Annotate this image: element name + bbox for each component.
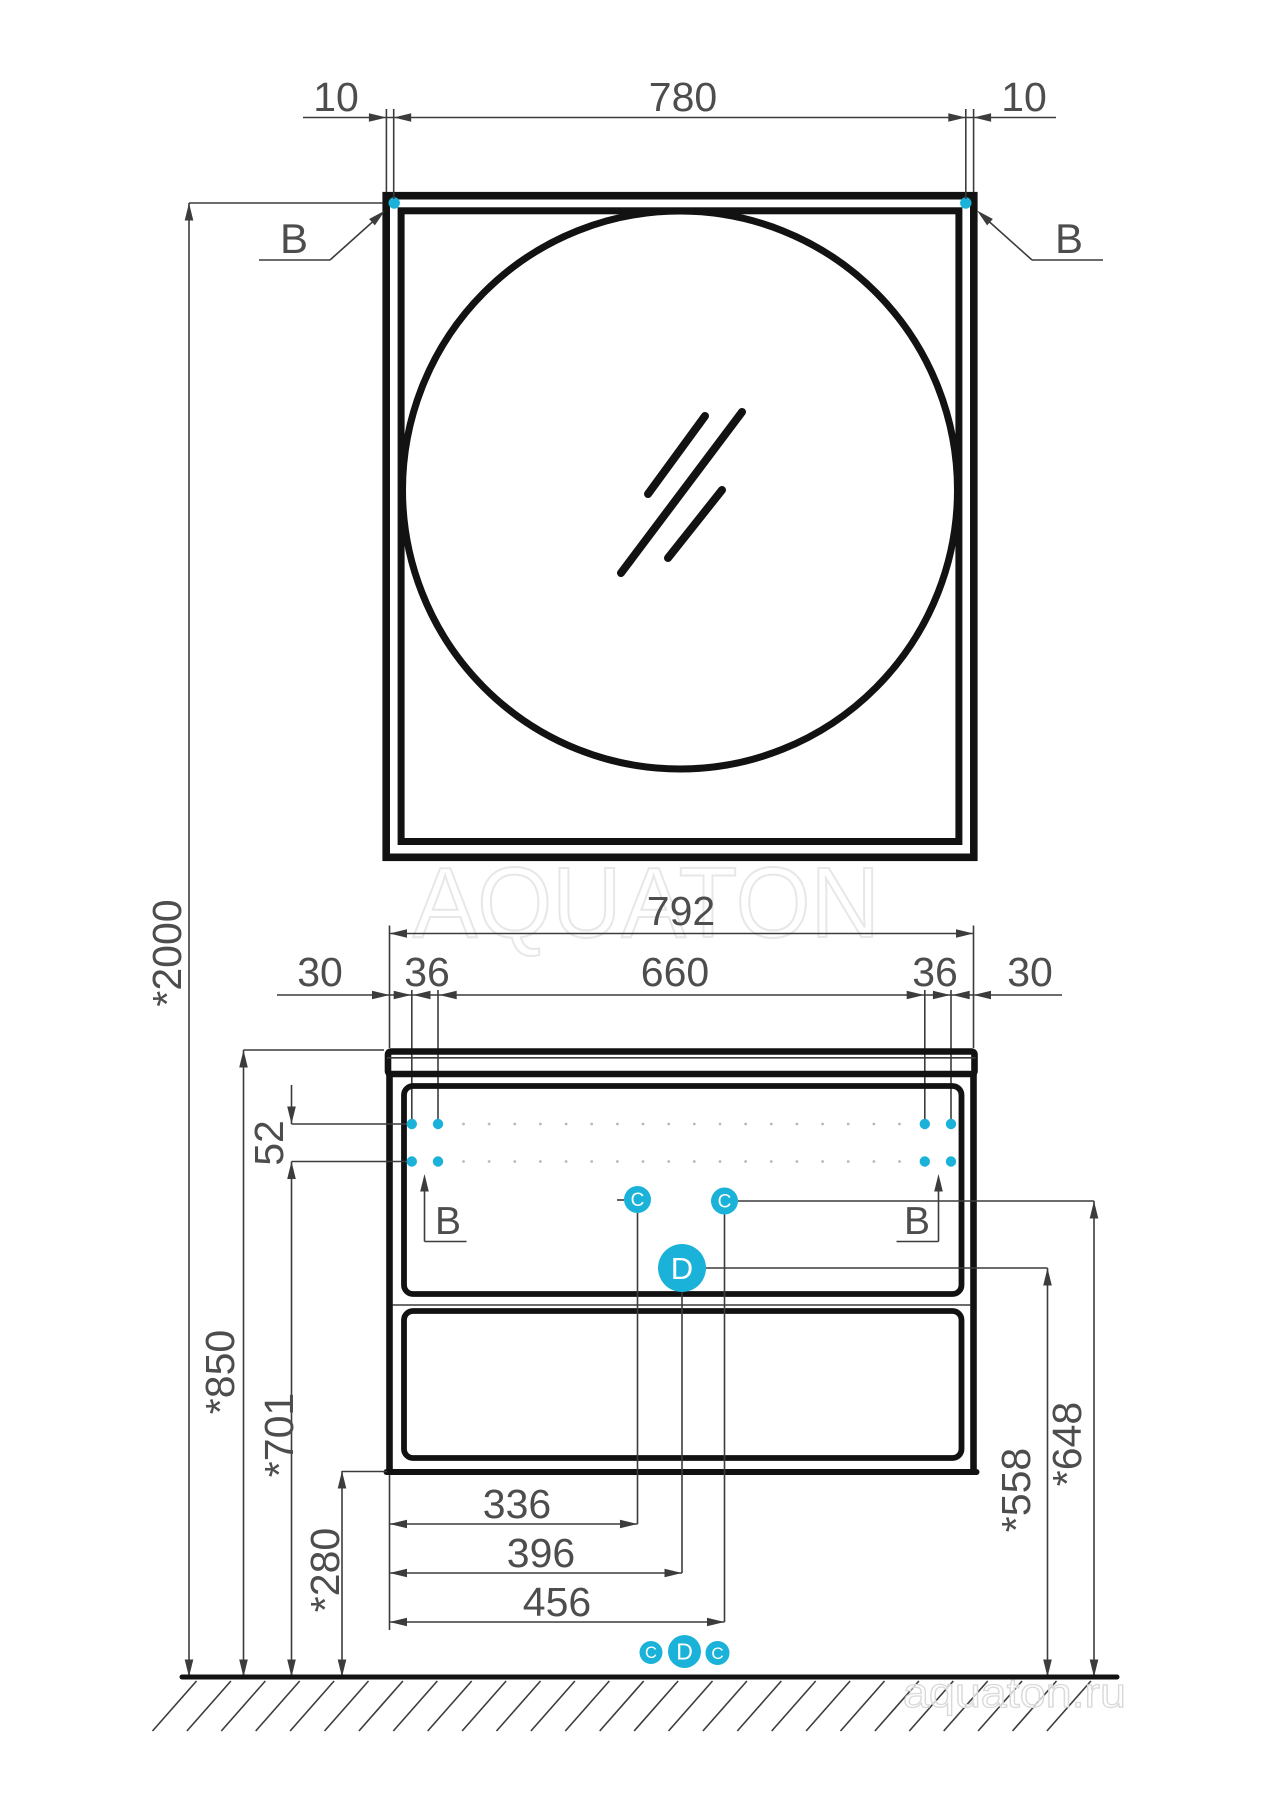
svg-text:456: 456 [523,1579,591,1625]
svg-text:*280: *280 [302,1528,348,1612]
svg-text:36: 36 [912,949,958,995]
svg-text:D: D [671,1251,693,1286]
svg-text:*850: *850 [197,1330,243,1414]
svg-text:30: 30 [297,949,343,995]
svg-text:780: 780 [649,74,717,120]
svg-text:B: B [904,1200,930,1243]
svg-text:36: 36 [404,949,450,995]
svg-text:*558: *558 [993,1448,1039,1532]
svg-text:*648: *648 [1044,1402,1090,1486]
svg-text:B: B [435,1200,461,1243]
svg-text:660: 660 [641,949,709,995]
svg-text:792: 792 [647,888,715,934]
svg-text:D: D [676,1639,693,1665]
svg-text:C: C [718,1192,732,1213]
svg-text:C: C [645,1644,657,1662]
svg-text:C: C [711,1644,723,1663]
svg-text:396: 396 [507,1530,575,1576]
svg-text:30: 30 [1007,949,1053,995]
svg-text:B: B [1055,215,1083,262]
svg-text:10: 10 [1001,74,1047,120]
svg-text:336: 336 [483,1481,551,1527]
svg-text:10: 10 [313,74,359,120]
svg-text:52: 52 [246,1120,292,1166]
svg-text:*2000: *2000 [144,899,190,1006]
svg-text:aquaton.ru: aquaton.ru [903,1669,1126,1716]
svg-text:C: C [631,1190,645,1211]
svg-text:B: B [280,215,308,262]
svg-text:*701: *701 [256,1393,302,1477]
